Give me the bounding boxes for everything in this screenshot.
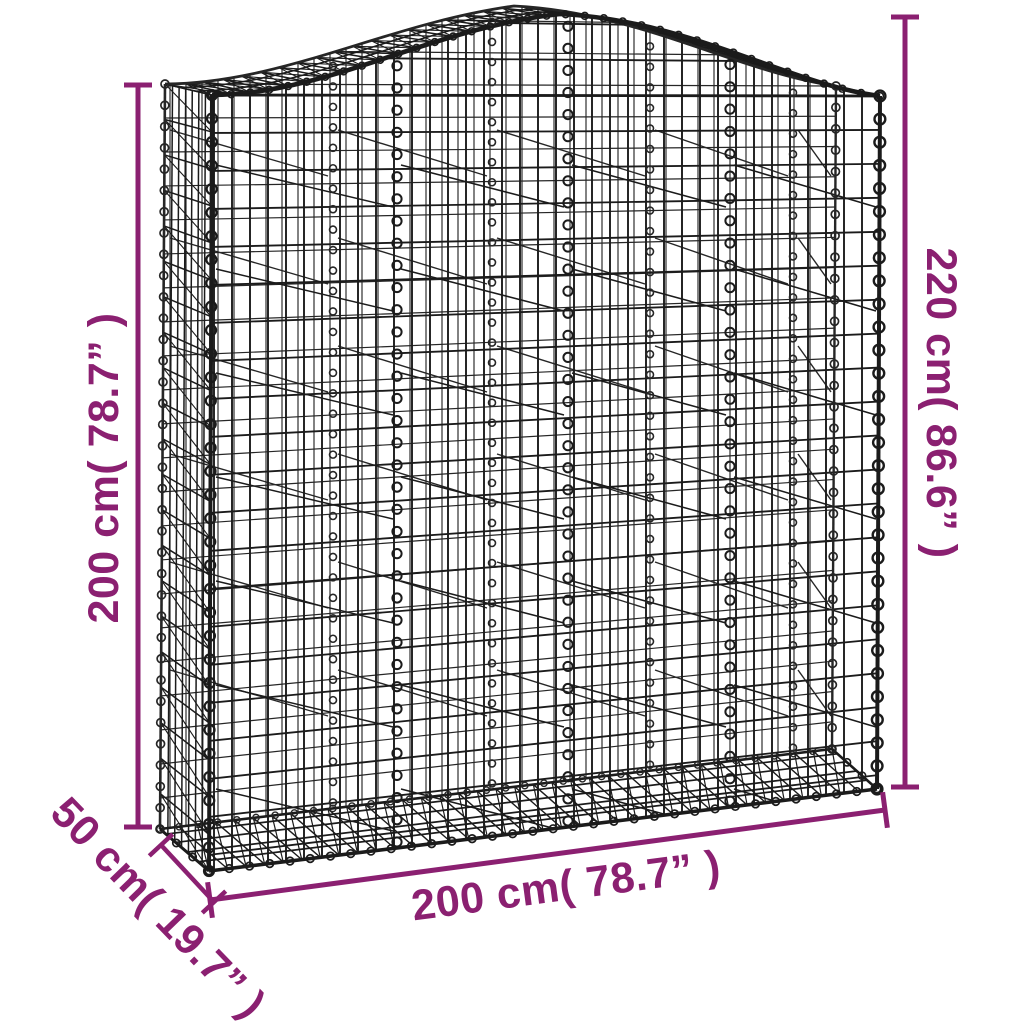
diagram-canvas: 200 cm( 78.7” )220 cm( 86.6” )200 cm( 78… — [0, 0, 1024, 1024]
gabion-dimension-diagram: 200 cm( 78.7” )220 cm( 86.6” )200 cm( 78… — [0, 0, 1024, 1024]
front-face-mesh — [208, 4, 881, 882]
label-height-right: 220 cm( 86.6” ) — [917, 247, 965, 558]
label-height-left: 200 cm( 78.7” ) — [80, 312, 128, 623]
